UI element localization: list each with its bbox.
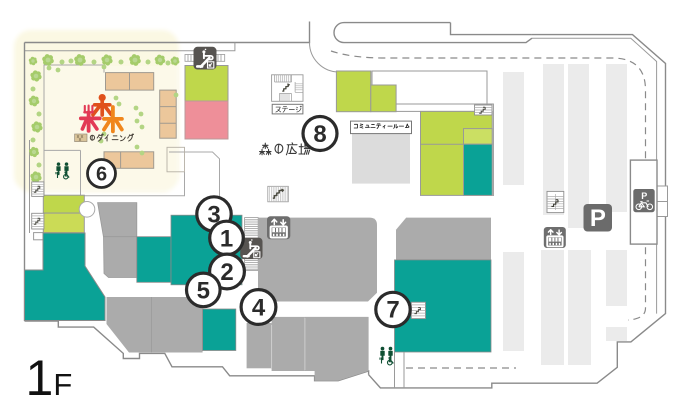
svg-text:6: 6 <box>96 164 107 186</box>
svg-text:P: P <box>641 191 647 201</box>
svg-text:2: 2 <box>220 259 233 286</box>
svg-text:P: P <box>590 205 606 232</box>
svg-text:4: 4 <box>252 295 266 322</box>
svg-text:8: 8 <box>313 121 326 148</box>
svg-text:1: 1 <box>220 226 233 253</box>
svg-text:5: 5 <box>197 277 210 304</box>
svg-text:7: 7 <box>386 297 399 324</box>
